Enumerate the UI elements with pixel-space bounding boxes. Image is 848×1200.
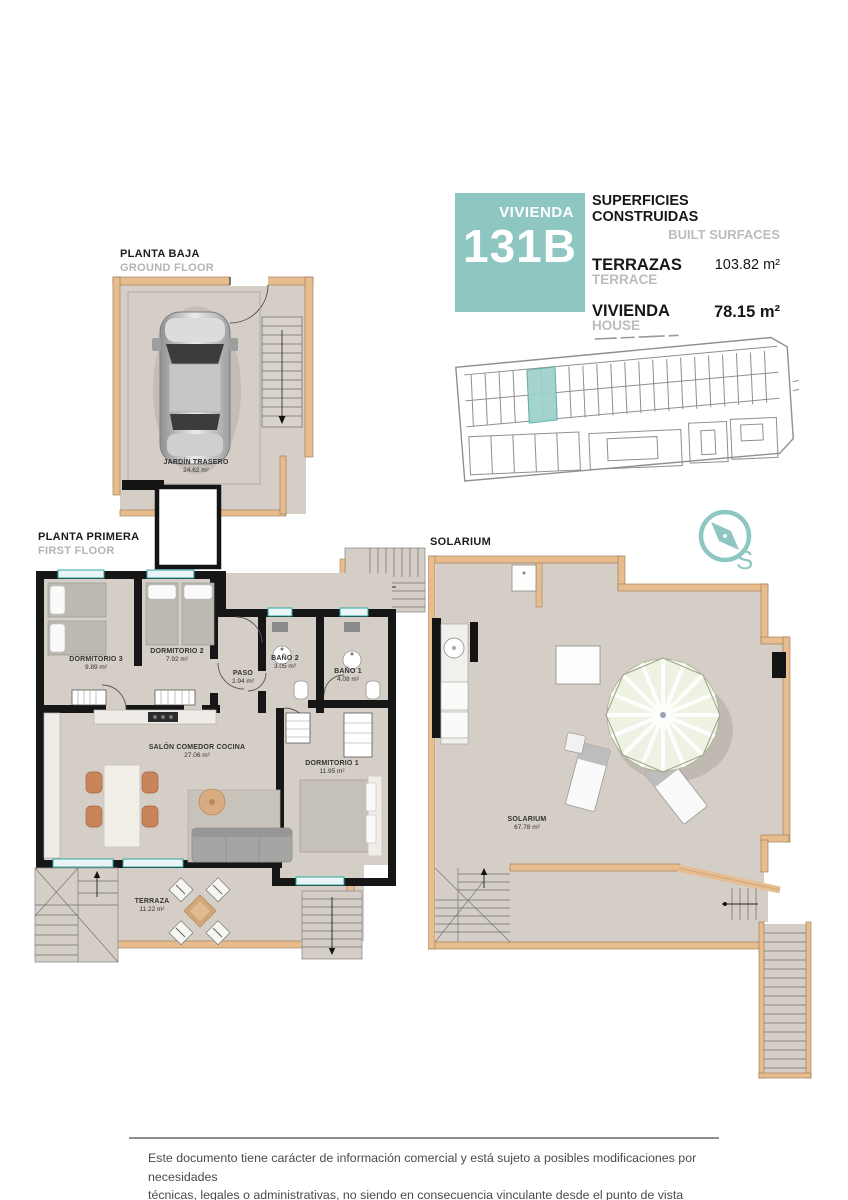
solarium-title-es: SOLARIUM: [430, 536, 491, 550]
footer-disclaimer: Este documento tiene carácter de informa…: [148, 1149, 708, 1200]
room-label-dormitorio-2: DORMITORIO 2 7.92 m²: [150, 648, 204, 663]
room-label-terraza: TERRAZA 11.22 m²: [135, 898, 170, 913]
room-label-bano-1: BAÑO 1 4.08 m²: [334, 668, 362, 683]
unit-number-card: VIVIENDA 131B: [455, 193, 585, 312]
highlighted-unit: [527, 367, 557, 423]
house-area-value: 78.15 m²: [714, 303, 780, 322]
surfaces-title-es: SUPERFICIES CONSTRUIDAS: [592, 194, 780, 226]
unit-card-label: VIVIENDA: [455, 193, 585, 221]
disclaimer-line-2: técnicas, legales o administrativas, no …: [148, 1186, 708, 1200]
built-surfaces-panel: SUPERFICIES CONSTRUIDAS BUILT SURFACES T…: [592, 194, 780, 333]
unit-number: 131B: [455, 222, 585, 270]
house-label-en: HOUSE: [592, 319, 670, 333]
floor-plan-page: VIVIENDA 131B SUPERFICIES CONSTRUIDAS BU…: [0, 0, 848, 1200]
room-label-salon: SALÓN COMEDOR COCINA 27.06 m²: [149, 744, 246, 759]
exterior-stairs-lower-right: [302, 891, 362, 959]
surface-row-house: VIVIENDA HOUSE 78.15 m²: [592, 303, 780, 334]
terrace-area-value: 103.82 m²: [715, 257, 780, 273]
ground-floor-plan: [105, 272, 320, 572]
room-label-solarium: SOLARIUM 67.78 m²: [508, 816, 547, 831]
exterior-stairs-lower-left: [35, 868, 118, 962]
site-plan: [448, 334, 800, 496]
room-label-jardin: JARDÍN TRASERO 24.62 m²: [163, 459, 228, 474]
first-floor-title-es: PLANTA PRIMERA: [38, 531, 139, 545]
solarium-title: SOLARIUM: [430, 536, 491, 550]
terrace-label-en: TERRACE: [592, 273, 682, 287]
ground-floor-title-es: PLANTA BAJA: [120, 248, 214, 262]
footer-divider: [129, 1137, 719, 1139]
room-label-dormitorio-1: DORMITORIO 1 11.95 m²: [305, 760, 359, 775]
terrace-label-es: TERRAZAS: [592, 257, 682, 274]
house-label-es: VIVIENDA: [592, 303, 670, 320]
room-label-paso: PASO 2.94 m²: [232, 670, 254, 685]
surface-row-terrace: TERRAZAS TERRACE 103.82 m²: [592, 257, 780, 288]
car-top-view: [152, 306, 241, 474]
solarium-plan: [428, 552, 818, 1087]
room-label-dormitorio-3: DORMITORIO 3 9.89 m²: [69, 656, 123, 671]
surfaces-title-en: BUILT SURFACES: [592, 227, 780, 242]
room-label-bano-2: BAÑO 2 3.05 m²: [271, 655, 299, 670]
disclaimer-line-1: Este documento tiene carácter de informa…: [148, 1149, 708, 1186]
